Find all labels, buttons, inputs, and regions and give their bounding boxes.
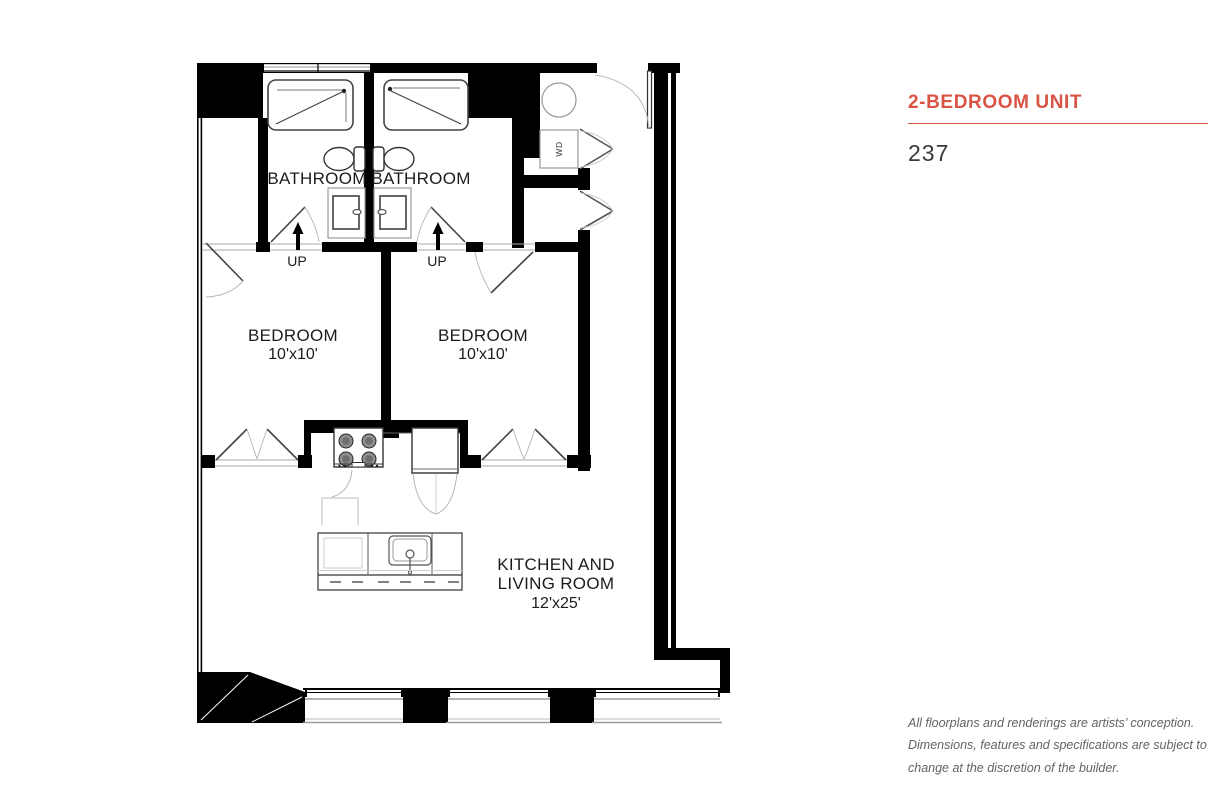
washer-icon: [542, 83, 576, 117]
bathtub-right-icon: [384, 80, 468, 130]
wd-label: WD: [554, 141, 564, 156]
unit-number: 237: [908, 140, 1208, 167]
island-sink-icon: [318, 533, 462, 590]
bathroom-left-label: BATHROOM: [267, 169, 366, 188]
laundry-closet: WD: [540, 130, 578, 168]
bottom-windows: [303, 688, 722, 723]
living-label-line1: KITCHEN AND: [497, 555, 615, 574]
vanity-right-icon: [374, 188, 411, 238]
bathtub-left-icon: [268, 80, 353, 130]
up-right-label: UP: [427, 253, 446, 269]
up-left-label: UP: [287, 253, 306, 269]
toilet-right-icon: [373, 147, 414, 171]
floorplan-drawing: WD: [195, 58, 740, 730]
bathroom-right-label: BATHROOM: [371, 169, 470, 188]
bedroom-right-dims: 10'x10': [458, 346, 508, 363]
toilet-left-icon: [324, 147, 365, 171]
bedroom-left-dims: 10'x10': [268, 346, 318, 363]
page-title: 2-BEDROOM UNIT: [908, 92, 1208, 124]
bedroom-right-label: BEDROOM: [438, 326, 528, 345]
vanity-left-icon: [328, 188, 365, 238]
bedroom-left-label: BEDROOM: [248, 326, 338, 345]
disclaimer-text: All floorplans and renderings are artist…: [908, 712, 1220, 779]
living-label-line2: LIVING ROOM: [498, 574, 615, 593]
fridge-icon: [412, 428, 458, 514]
walls: [197, 63, 730, 723]
stove-icon: [334, 428, 383, 467]
cabinet-outline: [322, 498, 358, 525]
top-window: [264, 63, 370, 72]
floorplan-area: WD: [0, 0, 760, 794]
living-dims: 12'x25': [531, 595, 581, 612]
info-panel: 2-BEDROOM UNIT 237: [908, 92, 1208, 167]
